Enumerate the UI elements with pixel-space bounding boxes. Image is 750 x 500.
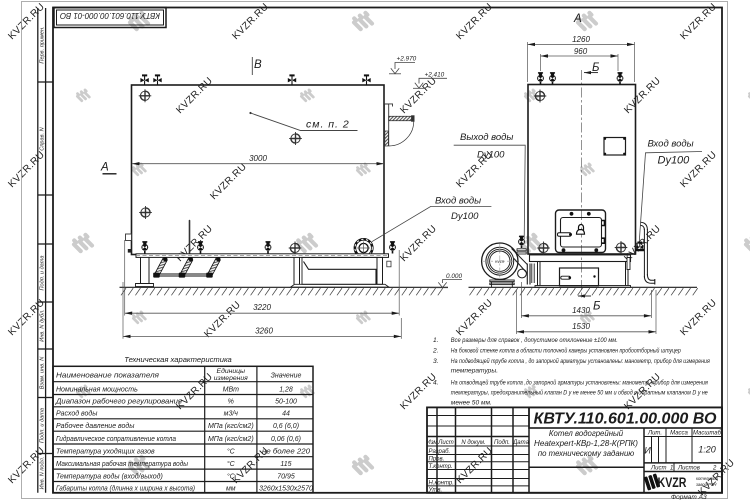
svg-text:А: А [573, 13, 582, 25]
svg-text:70/95: 70/95 [277, 474, 295, 481]
svg-text:+2.410: +2.410 [425, 71, 445, 78]
svg-text:°С: °С [227, 473, 236, 481]
svg-text:измерения: измерения [214, 375, 248, 382]
svg-text:КВТУ.110.601.00.000-01 ВО: КВТУ.110.601.00.000-01 ВО [59, 11, 160, 20]
svg-text:менее 50 мм.: менее 50 мм. [451, 400, 492, 407]
svg-text:Н.контр.: Н.контр. [429, 480, 454, 486]
svg-text:На подводящей трубе котла ,: На подводящей трубе котла , до запорной … [451, 357, 710, 365]
svg-text:Техническая характеристика: Техническая характеристика [124, 355, 232, 364]
svg-text:Взам. инв. N: Взам. инв. N [40, 356, 46, 390]
svg-text:КВТУ.110.601.00.000 ВО: КВТУ.110.601.00.000 ВО [534, 411, 718, 428]
svg-text:Номинальная мощность: Номинальная мощность [56, 386, 138, 393]
svg-text:Масштаб: Масштаб [693, 431, 722, 437]
svg-text:температуры, предохранительный: температуры, предохранительный клапан D … [451, 389, 708, 397]
svg-text:Dy100: Dy100 [477, 150, 505, 161]
svg-text:3000: 3000 [249, 154, 267, 163]
svg-text:3260х1530х2570: 3260х1530х2570 [259, 486, 313, 493]
svg-text:2.: 2. [432, 348, 439, 355]
svg-text:Температура уходящих газов: Температура уходящих газов [56, 448, 155, 456]
svg-text:44: 44 [282, 411, 290, 418]
svg-text:мм: мм [226, 486, 236, 493]
svg-text:Выход воды: Выход воды [460, 132, 513, 143]
svg-text:Лист: Лист [437, 440, 453, 446]
svg-text:А: А [100, 162, 109, 174]
svg-text:Т.контр.: Т.контр. [429, 464, 453, 470]
svg-text:1.: 1. [433, 337, 439, 344]
svg-text:МПа (кгс/см2): МПа (кгс/см2) [208, 423, 254, 430]
svg-text:1:20: 1:20 [698, 445, 716, 455]
svg-text:+2.970: +2.970 [397, 56, 417, 63]
svg-text:Формат А3: Формат А3 [671, 494, 707, 500]
svg-text:завод РЗН: завод РЗН [695, 482, 717, 487]
svg-text:Подп. и дата: Подп. и дата [40, 255, 46, 290]
svg-text:МВт: МВт [223, 386, 240, 393]
svg-text:Подп. и дата: Подп. и дата [40, 408, 46, 443]
svg-text:температуры.: температуры. [451, 368, 498, 375]
svg-text:Масса: Масса [670, 431, 688, 437]
svg-text:В: В [254, 59, 262, 71]
svg-text:Б: Б [593, 301, 601, 313]
svg-text:0,6 (6,0): 0,6 (6,0) [273, 423, 299, 430]
svg-text:Справ. N: Справ. N [40, 126, 46, 150]
svg-text:Наименование показателя: Наименование показателя [56, 373, 159, 380]
svg-text:Dy100: Dy100 [658, 155, 691, 167]
svg-text:не более 220: не более 220 [262, 448, 310, 456]
svg-text:115: 115 [280, 461, 291, 468]
svg-text:котельный: котельный [696, 476, 719, 481]
svg-text:3260: 3260 [255, 326, 273, 335]
svg-text:1530: 1530 [572, 322, 590, 331]
svg-text:2: 2 [712, 466, 717, 472]
svg-text:Гидравлическое сопративление к: Гидравлическое сопративление котла [56, 435, 176, 443]
svg-text:м3/ч: м3/ч [224, 411, 239, 418]
svg-text:960: 960 [574, 47, 588, 56]
svg-text:Изм: Изм [426, 440, 437, 446]
svg-text:На отводящей трубе котла ,до з: На отводящей трубе котла ,до запорной ар… [451, 379, 708, 387]
svg-text:Рабочее давление воды: Рабочее давление воды [56, 422, 135, 430]
svg-text:Котел водогрейный: Котел водогрейный [549, 429, 624, 438]
svg-text:Инв. N дубл.: Инв. N дубл. [40, 309, 46, 341]
svg-text:°С: °С [227, 448, 236, 456]
svg-text:3.: 3. [433, 358, 439, 365]
svg-text:Максимальная рабочая температу: Максимальная рабочая температура воды [56, 460, 189, 468]
svg-text:Dy100: Dy100 [451, 211, 479, 222]
svg-text:Лит.: Лит. [647, 431, 662, 437]
svg-text:Значение: Значение [271, 373, 302, 380]
svg-text:На боковой стенке котла в обла: На боковой стенке котла в области топочн… [451, 347, 681, 355]
svg-text:МПа (кгс/см2): МПа (кгс/см2) [208, 436, 254, 443]
svg-text:Вход воды: Вход воды [435, 196, 481, 207]
svg-text:Heatexpert-КВр-1,28-К(РПК): Heatexpert-КВр-1,28-К(РПК) [534, 439, 638, 448]
svg-text:Диапазон рабочего регулировани: Диапазон рабочего регулирования [55, 398, 182, 406]
svg-text:°С: °С [227, 460, 236, 468]
svg-text:Пров.: Пров. [429, 456, 445, 462]
svg-text:3220: 3220 [253, 303, 271, 312]
svg-text:1,28: 1,28 [279, 386, 293, 393]
svg-text:0,06 (0,6): 0,06 (0,6) [271, 436, 301, 443]
svg-text:И: И [644, 446, 651, 456]
svg-text:KVZR: KVZR [658, 475, 687, 490]
svg-text:Температура воды (вход/выход): Температура воды (вход/выход) [56, 473, 163, 481]
svg-text:Единицы: Единицы [217, 367, 245, 375]
svg-text:Дата: Дата [512, 440, 529, 446]
svg-text:см. п. 2: см. п. 2 [306, 119, 350, 131]
svg-text:%: % [228, 399, 234, 406]
svg-text:1: 1 [670, 466, 673, 472]
svg-text:Листов: Листов [677, 466, 700, 472]
svg-text:0.000: 0.000 [446, 273, 462, 280]
svg-text:4.: 4. [433, 380, 439, 387]
svg-text:1430: 1430 [572, 306, 590, 315]
svg-text:Все размеры для справок , допу: Все размеры для справок , допустимое отк… [451, 336, 618, 344]
svg-text:N докум.: N докум. [461, 440, 485, 446]
svg-text:Лист: Лист [650, 466, 666, 472]
svg-text:Инв. N подл.: Инв. N подл. [40, 457, 46, 490]
svg-text:Перв. примен.: Перв. примен. [40, 26, 46, 63]
svg-text:по техническому заданию: по техническому заданию [538, 449, 634, 458]
svg-text:Вход воды: Вход воды [648, 139, 694, 150]
svg-text:50-100: 50-100 [275, 399, 297, 406]
svg-text:Подп.: Подп. [494, 440, 510, 446]
svg-text:Утв.: Утв. [428, 487, 443, 493]
svg-text:1260: 1260 [572, 35, 590, 44]
svg-text:Габариты котла (длинна х ширин: Габариты котла (длинна х ширина х высота… [56, 485, 195, 493]
svg-text:Разраб.: Разраб. [429, 449, 451, 455]
svg-text:Расход воды: Расход воды [56, 410, 98, 418]
